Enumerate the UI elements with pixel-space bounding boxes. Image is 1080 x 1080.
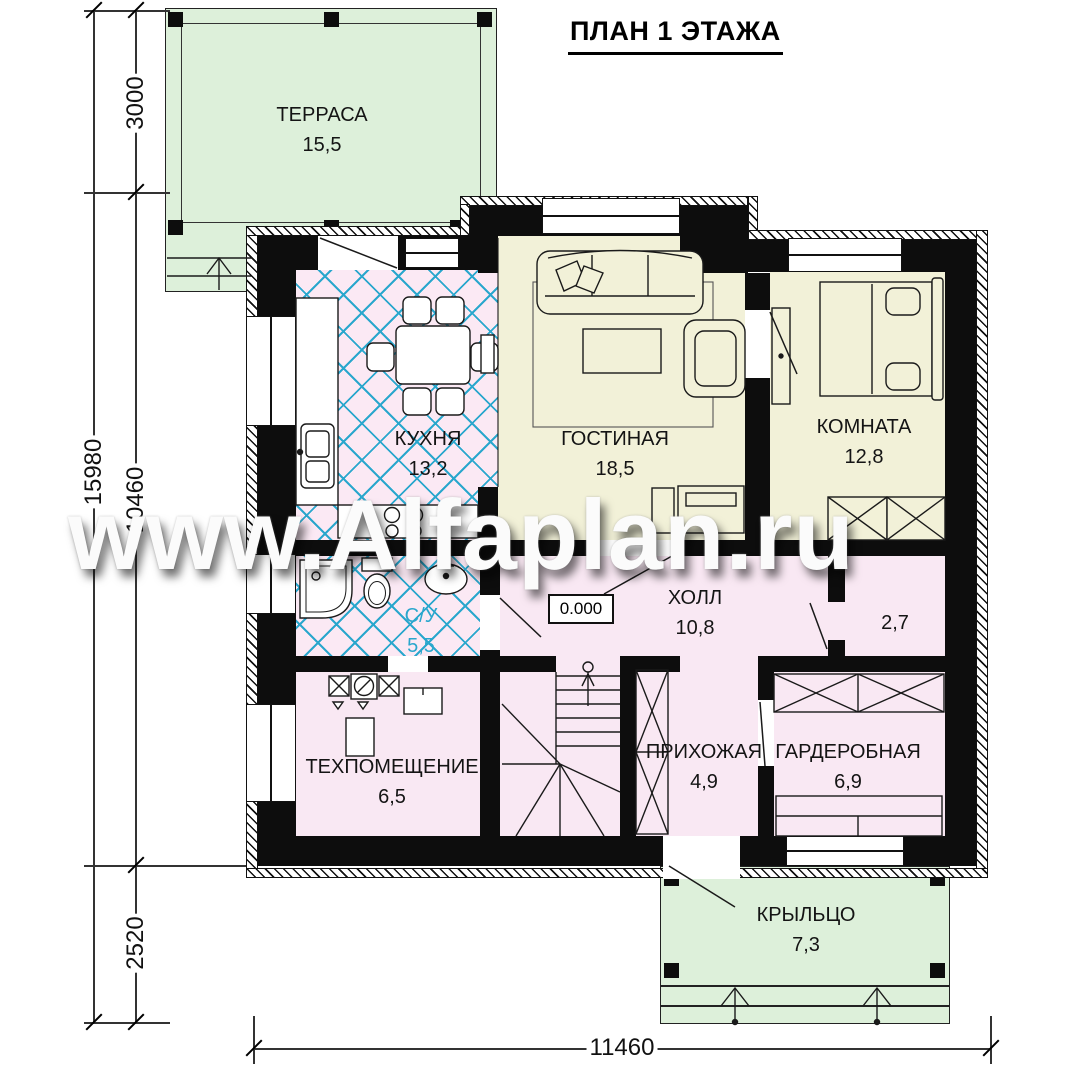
room-area: 7,3	[757, 930, 856, 960]
floor-plan-canvas: ПЛАН 1 ЭТАЖА 15980 3000 10460 2520 11460	[0, 0, 1080, 1080]
room-area: 5,5	[405, 631, 438, 661]
bedroom-label: КОМНАТА 12,8	[817, 412, 912, 472]
kitchen-label: КУХНЯ 13,2	[395, 424, 462, 484]
room-area: 6,5	[305, 782, 478, 812]
room-name: ГАРДЕРОБНАЯ	[775, 737, 921, 767]
page-title: ПЛАН 1 ЭТАЖА	[568, 16, 783, 55]
room-area: 6,9	[775, 767, 921, 797]
bathroom-label: С/У 5,5	[405, 601, 438, 661]
porch-steps-arrows	[721, 988, 891, 1025]
elevation-mark: 0.000	[548, 594, 614, 624]
room-name: ГОСТИНАЯ	[561, 424, 669, 454]
watermark: www.Alfaplan.ru	[68, 478, 855, 592]
room-name: ПРИХОЖАЯ	[646, 737, 762, 767]
living-label: ГОСТИНАЯ 18,5	[561, 424, 669, 484]
room-name: С/У	[405, 601, 438, 631]
room-name: КОМНАТА	[817, 412, 912, 442]
room-area: 2,7	[881, 608, 909, 638]
hall-label: ХОЛЛ 10,8	[668, 583, 722, 643]
room-name: КРЫЛЬЦО	[757, 900, 856, 930]
room-name: ТЕРРАСА	[276, 100, 367, 130]
room-area: 10,8	[668, 613, 722, 643]
wardrobe-label: ГАРДЕРОБНАЯ 6,9	[775, 737, 921, 797]
staircase	[502, 662, 620, 836]
room-area: 15,5	[276, 130, 367, 160]
entry-label: ПРИХОЖАЯ 4,9	[646, 737, 762, 797]
tech-equipment	[329, 674, 442, 756]
tech-label: ТЕХПОМЕЩЕНИЕ 6,5	[305, 752, 478, 812]
room-area: 4,9	[646, 767, 762, 797]
terrace-label: ТЕРРАСА 15,5	[276, 100, 367, 160]
closet-label: 2,7	[881, 608, 909, 638]
room-area: 12,8	[817, 442, 912, 472]
room-name: КУХНЯ	[395, 424, 462, 454]
terrace-steps	[167, 258, 252, 290]
porch-label: КРЫЛЬЦО 7,3	[757, 900, 856, 960]
dining-set	[367, 297, 498, 415]
room-name: ТЕХПОМЕЩЕНИЕ	[305, 752, 478, 782]
